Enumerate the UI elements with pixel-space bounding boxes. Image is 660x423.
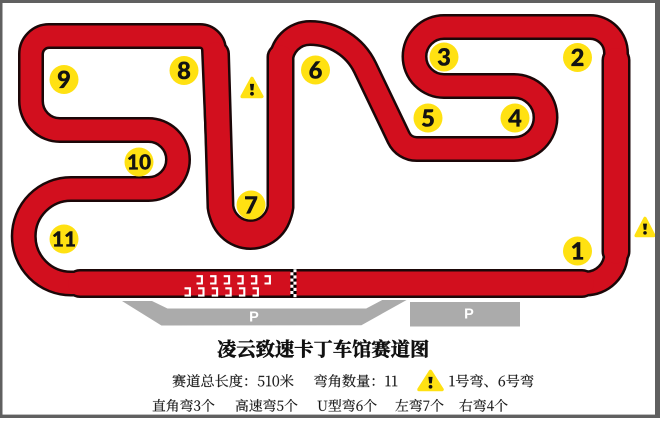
svg-text:P: P (464, 307, 474, 323)
svg-text:P: P (249, 310, 259, 326)
